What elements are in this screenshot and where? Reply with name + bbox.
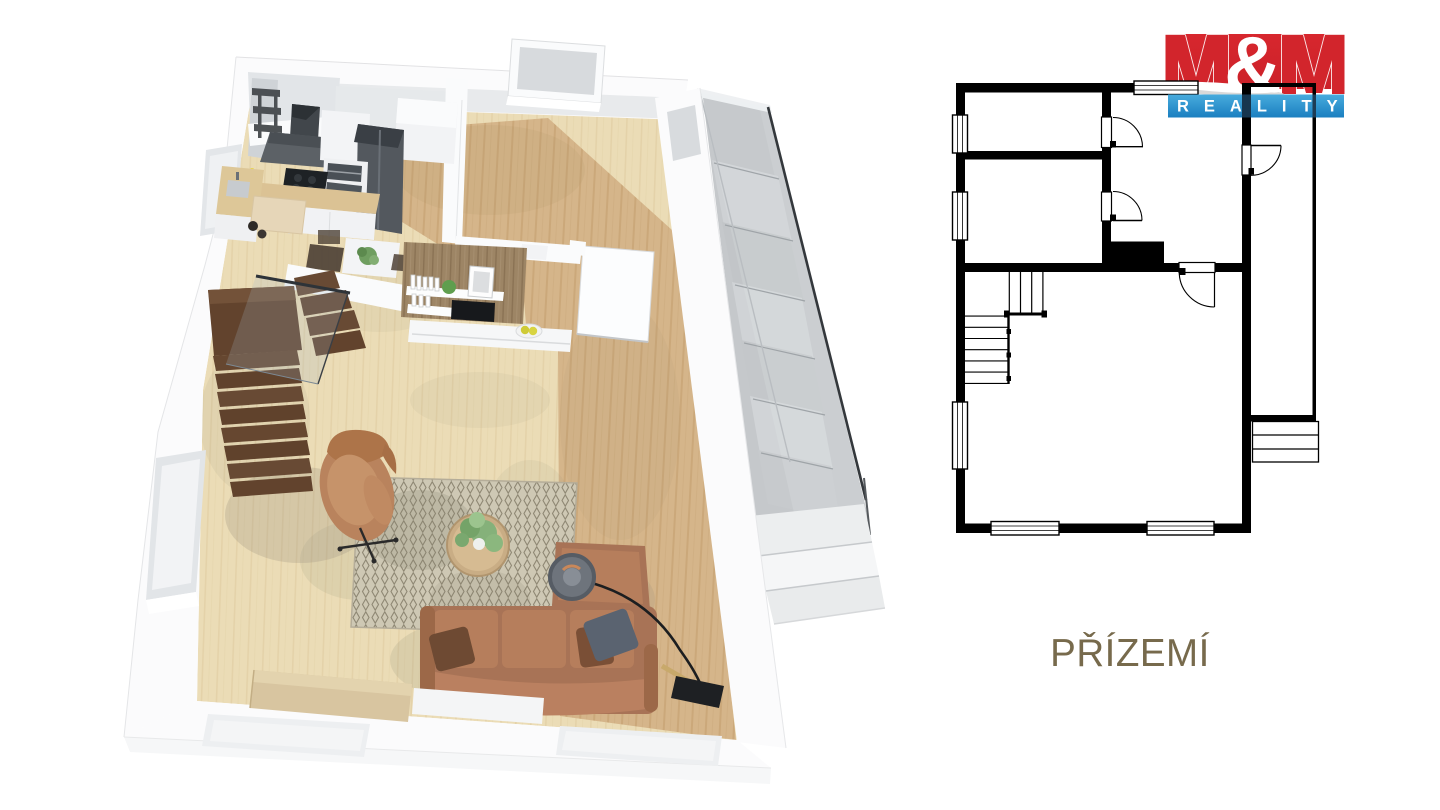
svg-text:PŘÍZEMÍ: PŘÍZEMÍ: [1050, 632, 1210, 675]
svg-text:REALITY: REALITY: [1177, 98, 1353, 116]
